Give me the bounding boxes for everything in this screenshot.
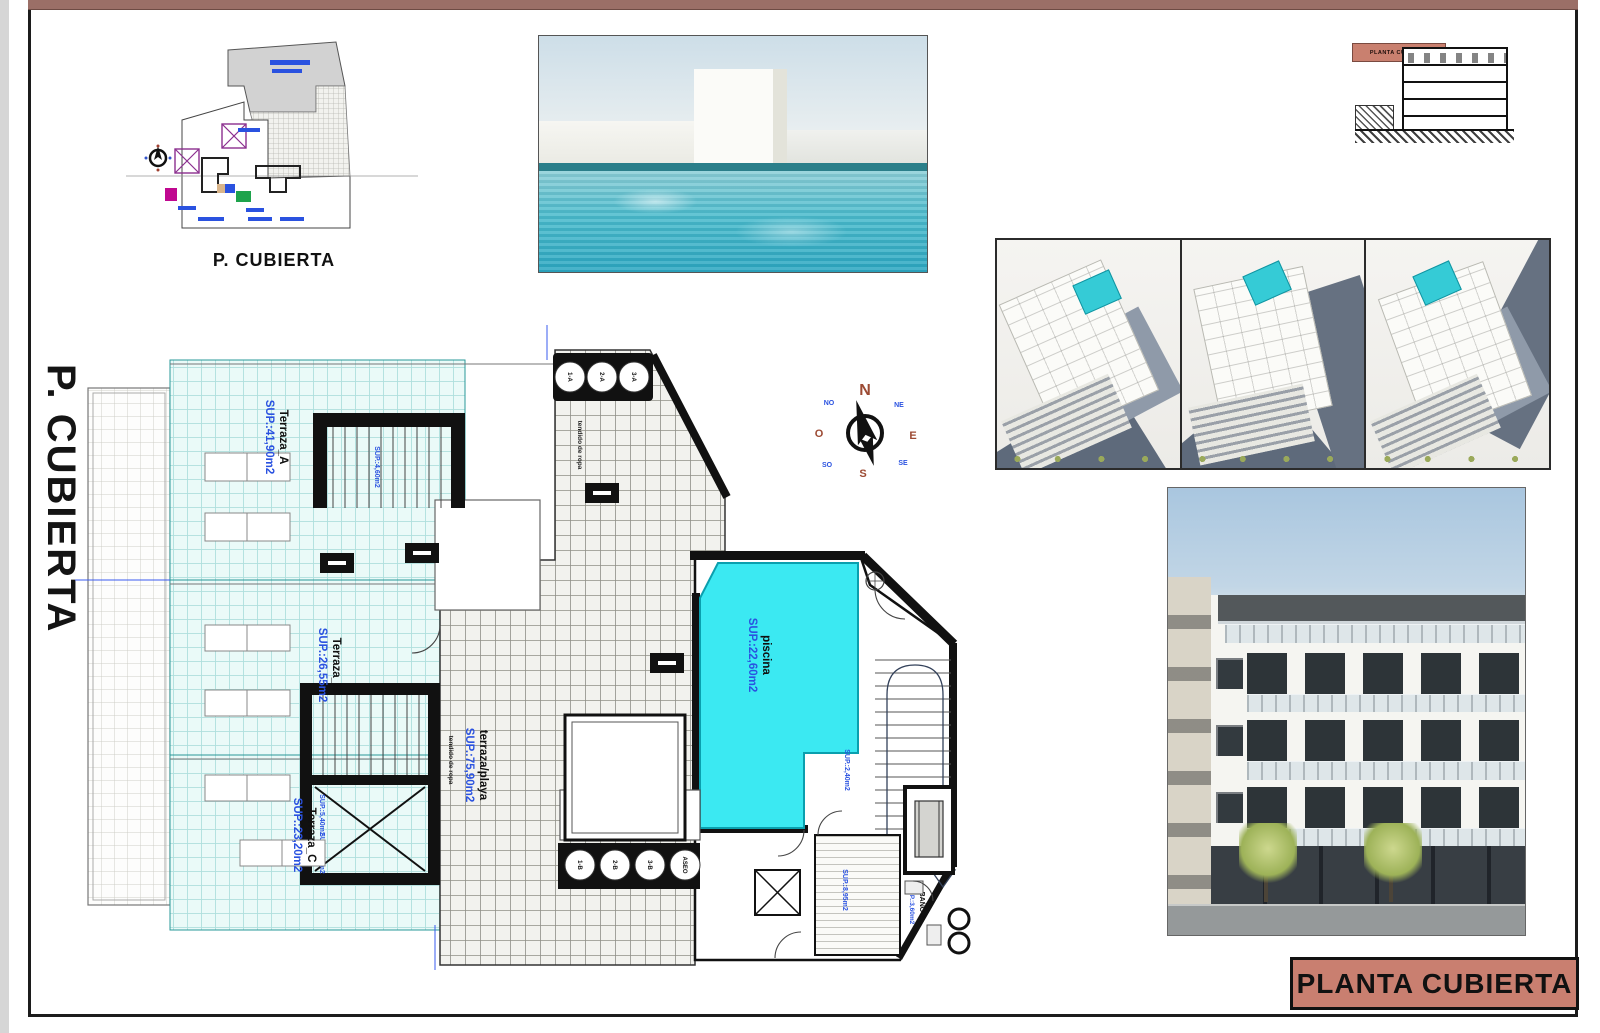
roof-railing [1225, 624, 1525, 643]
tiny-label [248, 217, 272, 221]
facade-render [1167, 487, 1526, 936]
svg-text:SUP.:23,20m2: SUP.:23,20m2 [291, 798, 303, 873]
tiny-label [270, 60, 310, 65]
tree [1239, 823, 1297, 887]
neighbor-building [1168, 577, 1211, 935]
stair-area-label: SUP.:5,40m2 [318, 794, 325, 836]
unit-color-chip [165, 188, 177, 201]
svg-text:SUP.:41,90m2: SUP.:41,90m2 [263, 400, 275, 475]
wc-fixture [927, 925, 941, 945]
svg-text:Terraza_A: Terraza_A [277, 410, 289, 465]
vent-label: 2-A [598, 372, 604, 382]
vent-label: 1-B [576, 860, 582, 870]
svg-text:piscina: piscina [760, 635, 772, 675]
svg-text:terraza/playa: terraza/playa [477, 730, 489, 801]
side-window [1216, 792, 1243, 823]
roof-room [435, 500, 540, 610]
svg-text:BAÑO-2: BAÑO-2 [918, 892, 927, 919]
drawing-sheet: P. CUBIERTA [0, 0, 1600, 1033]
roof-terrace-band [1218, 595, 1525, 624]
site-plan-caption: P. CUBIERTA [118, 250, 430, 271]
section-ground-line [1355, 129, 1513, 143]
svg-text:SUP.:26,55m2: SUP.:26,55m2 [316, 628, 328, 703]
vent-label: ASEO [681, 856, 687, 873]
vent-circle [949, 933, 969, 953]
aerial-render-3 [1366, 240, 1549, 468]
window-row [1247, 653, 1525, 693]
tree [1364, 823, 1422, 887]
top-color-bar [28, 0, 1578, 10]
balcony-railing [1247, 694, 1525, 713]
roof-floor-plan: piscina SUP.:22,60m2 SUP.:8,95m2 SUP.:2,… [75, 325, 975, 970]
pool-white-cube [694, 69, 787, 173]
compass-se: SE [898, 460, 908, 467]
unit-color-chip [224, 184, 235, 193]
site-key-plan-drawing [118, 28, 430, 246]
compass-nw: NO [824, 400, 835, 407]
vent-label: 3-A [630, 372, 636, 382]
compass-n: N [859, 382, 871, 399]
street-trees [1004, 455, 1172, 463]
left-roof-band [88, 388, 170, 905]
section-thumbnail: PLANTA CUBIERTA [1352, 33, 1517, 151]
pool-water [539, 171, 927, 272]
note-tendido: tendido de ropa [447, 736, 454, 785]
compass-w: O [815, 428, 824, 440]
note-tendido: tendido de ropa [576, 421, 583, 470]
deck-room [815, 835, 900, 955]
unit-color-chip [217, 184, 225, 193]
aerial-render-1 [997, 240, 1180, 468]
unit-color-chip [236, 191, 251, 202]
mini-compass-icon [145, 145, 172, 172]
svg-text:SUP.:75,90m2: SUP.:75,90m2 [463, 728, 475, 803]
pool-parapet-right [787, 130, 927, 163]
tiny-label [246, 208, 264, 212]
small-area-label: SUP.:2,40m2 [843, 749, 850, 791]
svg-text:Terraza_C: Terraza_C [305, 808, 317, 863]
compass-sw: SO [822, 462, 833, 469]
street-trees [1374, 455, 1542, 463]
sheet-title: PLANTA CUBIERTA [1297, 968, 1573, 1000]
compass-ne: NE [894, 402, 904, 409]
street [1168, 904, 1525, 936]
window-row [1247, 720, 1525, 760]
deck-room-area: SUP.:8,95m2 [841, 869, 848, 911]
scan-edge [0, 0, 9, 1033]
aerial-renders-strip [995, 238, 1551, 470]
svg-text:SUP.:22,60m2: SUP.:22,60m2 [746, 618, 758, 693]
compass-rose: N S E O NE NO SE SO [815, 382, 917, 480]
balcony-railing [1247, 761, 1525, 780]
vent-circle [949, 909, 969, 929]
vent-label: 2-B [611, 860, 617, 870]
sink-fixture [905, 881, 923, 894]
vent-label: 1-A [566, 372, 572, 382]
compass-s: S [859, 468, 866, 480]
tiny-label [272, 69, 302, 73]
tiny-label [280, 217, 304, 221]
title-block: PLANTA CUBIERTA [1290, 957, 1579, 1010]
svg-text:Terraza_B: Terraza_B [330, 638, 342, 693]
street-trees [1189, 455, 1357, 463]
stair-area-label: SUP.:4,60m2 [373, 446, 380, 488]
tiny-label [198, 217, 224, 221]
side-window [1216, 725, 1243, 756]
aerial-render-2 [1182, 240, 1365, 468]
skylight-box [565, 715, 685, 840]
compass-e: E [909, 430, 916, 442]
tiny-label [238, 128, 260, 132]
vent-label: 3-B [646, 860, 652, 870]
section-building [1402, 47, 1508, 135]
tiny-label [178, 206, 196, 210]
window-row [1247, 787, 1525, 827]
side-window [1216, 658, 1243, 689]
pool-render-photo [538, 35, 928, 273]
site-key-plan: P. CUBIERTA [118, 28, 430, 280]
